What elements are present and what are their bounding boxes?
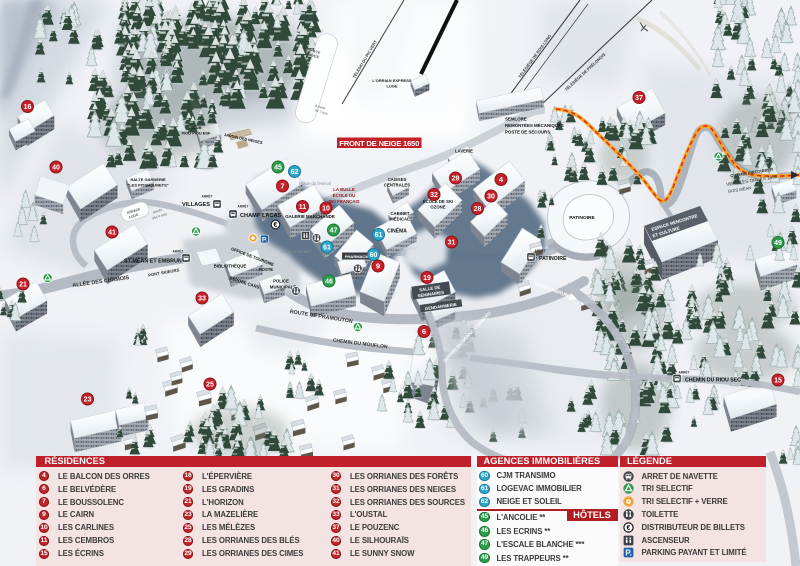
svg-text:OZONE: OZONE bbox=[430, 205, 445, 210]
svg-text:PIOU PIOU ESF: PIOU PIOU ESF bbox=[182, 131, 211, 136]
svg-text:37: 37 bbox=[635, 95, 643, 102]
svg-text:SKI FRANÇAIS: SKI FRANÇAIS bbox=[328, 199, 359, 204]
svg-text:60: 60 bbox=[370, 252, 378, 259]
svg-text:30: 30 bbox=[487, 194, 495, 201]
svg-text:L'ORRIAN EXPRESS: L'ORRIAN EXPRESS bbox=[372, 78, 412, 83]
svg-text:PHARMACIE: PHARMACIE bbox=[345, 254, 370, 259]
svg-text:ST MÉAN ET EMBRUN: ST MÉAN ET EMBRUN bbox=[124, 257, 182, 265]
svg-text:16: 16 bbox=[24, 104, 32, 111]
svg-text:Émile Hodoul: Émile Hodoul bbox=[392, 246, 418, 251]
svg-text:BIBLIOTHÈQUE: BIBLIOTHÈQUE bbox=[214, 264, 247, 269]
svg-text:HALTE GARDERIE: HALTE GARDERIE bbox=[130, 177, 166, 182]
svg-text:LUGE: LUGE bbox=[386, 84, 397, 89]
svg-text:CENTRALES: CENTRALES bbox=[384, 183, 410, 188]
svg-text:ARRÊT: ARRÊT bbox=[202, 194, 213, 199]
svg-text:REMONTÉES MÉCANIQUES: REMONTÉES MÉCANIQUES bbox=[505, 123, 564, 128]
svg-text:ARRÊT: ARRÊT bbox=[238, 204, 249, 209]
svg-text:41: 41 bbox=[108, 230, 116, 237]
svg-text:6: 6 bbox=[422, 327, 426, 336]
svg-text:62: 62 bbox=[291, 169, 299, 176]
svg-text:46: 46 bbox=[325, 279, 333, 286]
svg-text:47: 47 bbox=[330, 228, 338, 235]
svg-text:FRONT DE NEIGE 1650: FRONT DE NEIGE 1650 bbox=[339, 139, 419, 148]
svg-text:ÉCOLE DE SKI: ÉCOLE DE SKI bbox=[423, 199, 453, 204]
svg-text:CHAMP LACAS: CHAMP LACAS bbox=[240, 213, 281, 219]
svg-text:ÉCOLE DU: ÉCOLE DU bbox=[333, 193, 356, 198]
svg-text:CINÉMA: CINÉMA bbox=[387, 227, 407, 235]
svg-text:POLICE: POLICE bbox=[273, 279, 289, 284]
svg-text:LA BULLE: LA BULLE bbox=[333, 187, 355, 192]
svg-text:11: 11 bbox=[299, 204, 307, 211]
svg-text:19: 19 bbox=[423, 275, 431, 282]
svg-text:"LES PITCHOUNETS": "LES PITCHOUNETS" bbox=[127, 183, 168, 188]
svg-text:CHEMIN DU RIOU SEC: CHEMIN DU RIOU SEC bbox=[685, 378, 741, 384]
svg-text:MÉDICAL: MÉDICAL bbox=[390, 217, 410, 222]
svg-text:€: € bbox=[627, 525, 631, 532]
svg-text:29: 29 bbox=[452, 176, 460, 183]
svg-text:CABINET: CABINET bbox=[390, 211, 409, 216]
svg-text:CAISSES: CAISSES bbox=[388, 177, 407, 182]
svg-text:ARRÊT: ARRÊT bbox=[173, 249, 184, 254]
svg-text:21: 21 bbox=[19, 282, 27, 289]
svg-text:P.: P. bbox=[262, 236, 268, 243]
svg-text:POSTE: POSTE bbox=[259, 267, 273, 272]
svg-text:PATINOIRE: PATINOIRE bbox=[539, 256, 567, 262]
svg-text:25: 25 bbox=[206, 382, 214, 389]
svg-text:45: 45 bbox=[274, 165, 282, 172]
svg-text:LAVERIE: LAVERIE bbox=[455, 149, 473, 154]
svg-text:Place du festival: Place du festival bbox=[299, 181, 332, 186]
svg-text:61: 61 bbox=[323, 245, 331, 252]
svg-text:GALERIE MARCHANDE: GALERIE MARCHANDE bbox=[285, 214, 335, 219]
svg-text:ARRÊT: ARRÊT bbox=[535, 248, 546, 253]
svg-text:P.: P. bbox=[625, 548, 632, 557]
svg-text:€: € bbox=[274, 221, 278, 229]
svg-text:POSTE DE SECOURS: POSTE DE SECOURS bbox=[505, 130, 550, 135]
svg-text:CLUB: CLUB bbox=[191, 125, 202, 130]
svg-text:9: 9 bbox=[376, 262, 380, 271]
svg-text:PATINOIRE: PATINOIRE bbox=[569, 215, 595, 221]
svg-text:33: 33 bbox=[198, 296, 206, 303]
svg-text:Place: Place bbox=[399, 240, 410, 245]
svg-text:23: 23 bbox=[84, 397, 92, 404]
svg-text:61: 61 bbox=[375, 232, 383, 239]
svg-text:32: 32 bbox=[430, 192, 438, 199]
svg-text:40: 40 bbox=[52, 165, 60, 172]
svg-text:28: 28 bbox=[474, 206, 482, 213]
svg-text:49: 49 bbox=[774, 240, 782, 247]
svg-text:SEMLORE: SEMLORE bbox=[505, 117, 527, 122]
svg-text:ARRÊT: ARRÊT bbox=[679, 370, 690, 375]
svg-text:Place d'accueil: Place d'accueil bbox=[281, 249, 311, 254]
svg-text:15: 15 bbox=[774, 378, 782, 385]
svg-text:VILLAGES: VILLAGES bbox=[182, 202, 210, 208]
svg-text:10: 10 bbox=[322, 206, 330, 213]
svg-text:7: 7 bbox=[280, 182, 284, 191]
svg-text:31: 31 bbox=[448, 240, 456, 247]
